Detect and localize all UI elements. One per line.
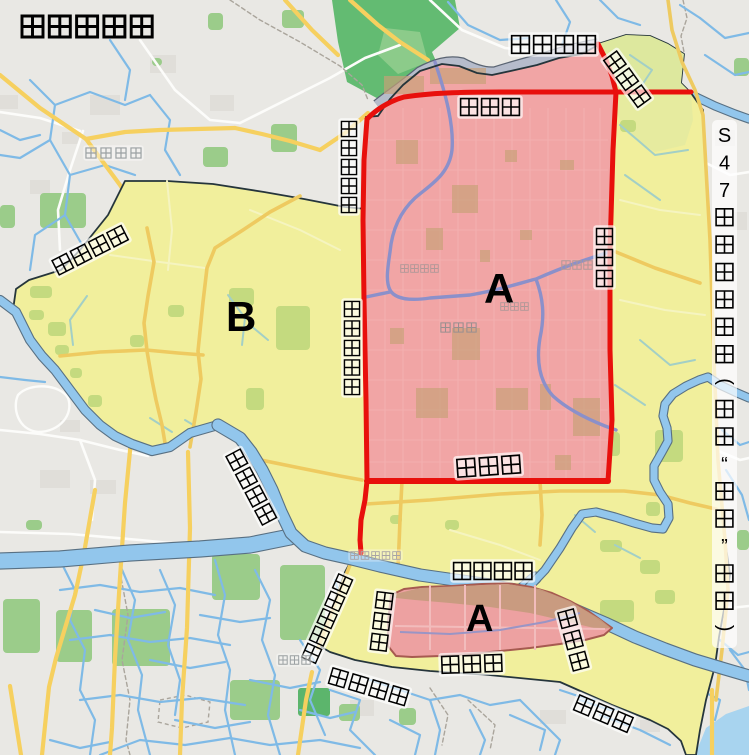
svg-text:(: ( [714, 378, 736, 385]
svg-text:B: B [226, 293, 256, 340]
svg-text:”: ” [721, 536, 728, 558]
svg-text:S: S [718, 125, 731, 147]
svg-text:4: 4 [719, 152, 730, 174]
svg-text:7: 7 [719, 180, 730, 202]
svg-text:A: A [484, 265, 514, 312]
svg-text:“: “ [721, 454, 728, 476]
svg-text:): ) [714, 625, 736, 632]
svg-text:A: A [466, 598, 493, 640]
